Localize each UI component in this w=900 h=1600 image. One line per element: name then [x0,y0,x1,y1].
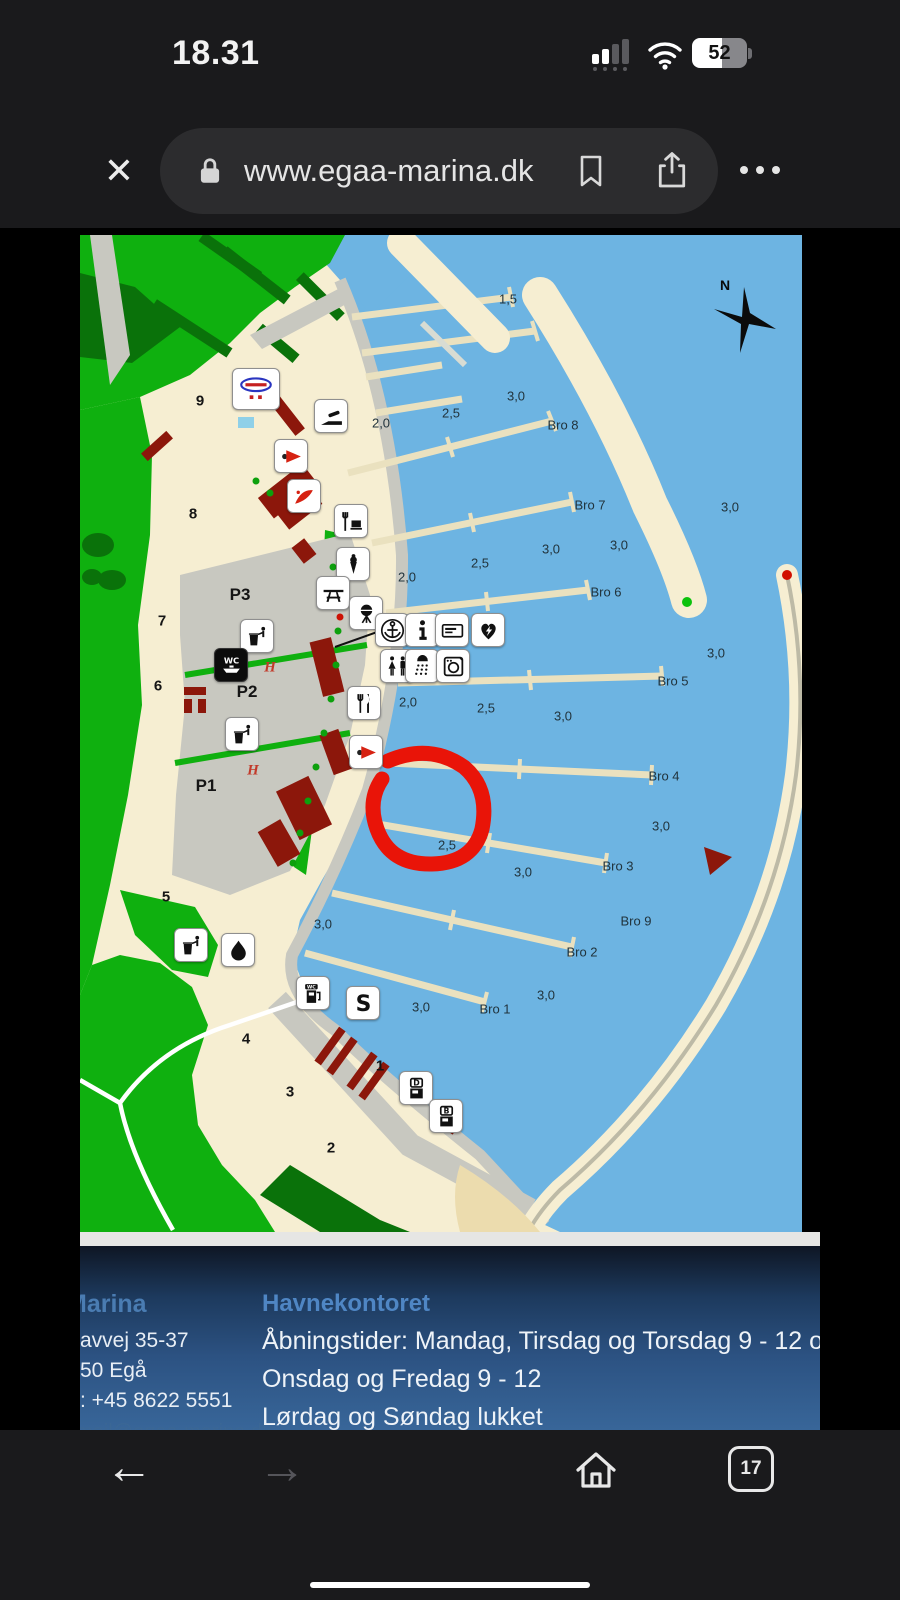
restaurant-icon [347,686,381,720]
pier-label-bro4: Bro 4 [648,769,679,784]
depth-label: 3,0 [412,1000,430,1015]
sailing-school-icon [287,479,321,513]
area-label-9: 9 [196,393,204,410]
bookmark-icon[interactable] [578,154,604,188]
depth-label: 3,0 [554,709,572,724]
wifi-icon [646,38,684,70]
red-dot-marker [337,614,344,621]
tab-count-button[interactable]: 17 [728,1446,774,1492]
depth-label: 2,0 [372,416,390,431]
footer-hours-line3: Lørdag og Søndag lukket [262,1403,820,1430]
restaurant-cafe-icon [334,504,368,538]
depth-label: 3,0 [721,500,739,515]
clock: 18.31 [172,34,260,73]
area-label-2: 2 [327,1140,335,1157]
waste-2-icon [225,717,259,751]
footer-office-title: Havnekontoret [262,1290,820,1318]
information-icon [405,613,439,647]
club-pennant-icon [274,439,308,473]
hydrant-marker: H [264,660,276,677]
marina-map-image: WC WC S D B N 1,5 2,0 2,5 3,0 3,0 3,0 3,… [80,235,802,1232]
diesel-pump-icon: D [399,1071,433,1105]
depth-label: 3,0 [507,389,525,404]
club-pennant-2-icon [349,735,383,769]
waste-3-icon [174,928,208,962]
battery-percent: 52 [692,38,747,68]
depth-label: 3,0 [652,819,670,834]
depth-label: 3,0 [707,646,725,661]
pier-label-bro7: Bro 7 [574,498,605,513]
payment-card-icon [435,613,469,647]
pier-label-bro2: Bro 2 [566,945,597,960]
parking-label-p2: P2 [237,682,258,702]
wc-pumpout-icon: WC [214,648,248,682]
home-button[interactable] [570,1444,622,1496]
depth-label: 2,5 [438,838,456,853]
pier-label-bro8: Bro 8 [547,418,578,433]
svg-text:S: S [355,991,371,1015]
parking-label-p1: P1 [196,776,217,796]
drinking-water-icon [221,933,255,967]
site-footer: Marina avvej 35-37 50 Egå : +45 8622 555… [80,1246,820,1430]
area-label-5: 5 [162,889,170,906]
browser-bottom-nav: ← → 17 [0,1430,900,1600]
laundry-icon [436,649,470,683]
battery-indicator: 52 [692,38,750,68]
depth-label: 2,0 [398,570,416,585]
depth-label: 2,0 [399,695,417,710]
harbour-office-anchor-icon [375,613,409,647]
depth-label: 3,0 [537,988,555,1003]
area-label-1: 1 [376,1058,384,1075]
area-label-3: 3 [286,1084,294,1101]
url-text: www.egaa-marina.dk [244,128,533,214]
area-label-8: 8 [189,506,197,523]
hydrant-marker: H [247,763,259,780]
pier-label-bro9: Bro 9 [620,914,651,929]
crane-hook-icon: S [346,986,380,1020]
svg-text:B: B [443,1106,449,1115]
fuel-wc-pumpout-icon: WC [296,976,330,1010]
pier-label-bro3: Bro 3 [602,859,633,874]
defibrillator-icon [471,613,505,647]
depth-label: 1,5 [499,292,517,307]
footer-office-column: Havnekontoret Åbningstider: Mandag, Tirs… [262,1290,820,1430]
parking-label-p3: P3 [230,585,251,605]
depth-label: 2,5 [471,556,489,571]
footer-hours-line1: Åbningstider: Mandag, Tirsdag og Torsdag… [262,1327,820,1356]
pier-label-bro6: Bro 6 [590,585,621,600]
benzin-pump-icon: B [429,1099,463,1133]
pier-label-bro1: Bro 1 [479,1002,510,1017]
slipway-icon [314,399,348,433]
marina-map-graphics [80,235,802,1232]
marina-logo-sign [232,368,280,410]
lock-icon [198,156,222,186]
depth-label: 3,0 [610,538,628,553]
red-harbour-light [782,570,792,580]
svg-text:D: D [413,1078,420,1087]
area-label-4: 4 [242,1031,250,1048]
close-tab-button[interactable]: ✕ [94,144,144,198]
svg-text:WC: WC [307,984,316,990]
depth-label: 3,0 [514,865,532,880]
svg-text:WC: WC [223,655,238,665]
browser-chrome-top: 18.31 52 ✕ www.egaa-marina.dk [0,0,900,228]
depth-label: 3,0 [542,542,560,557]
depth-label: 3,0 [314,917,332,932]
footer-hours-line2: Onsdag og Fredag 9 - 12 [262,1365,820,1394]
url-bar[interactable]: www.egaa-marina.dk [160,128,718,214]
page-background-strip [80,1232,820,1246]
browser-menu-button[interactable] [740,166,796,178]
depth-label: 2,5 [477,701,495,716]
area-label-6: 6 [154,678,162,695]
forward-button[interactable]: → [258,1438,306,1498]
depth-label: 2,5 [442,406,460,421]
shower-icon [405,649,439,683]
compass-north-label: N [720,277,730,293]
home-indicator[interactable] [310,1582,590,1588]
pier-label-bro5: Bro 5 [657,674,688,689]
back-button[interactable]: ← [105,1438,153,1498]
area-label-7: 7 [158,613,166,630]
cellular-signal-icon [592,36,636,72]
share-icon[interactable] [656,150,688,190]
green-harbour-light [682,597,692,607]
picnic-table-icon [316,576,350,610]
